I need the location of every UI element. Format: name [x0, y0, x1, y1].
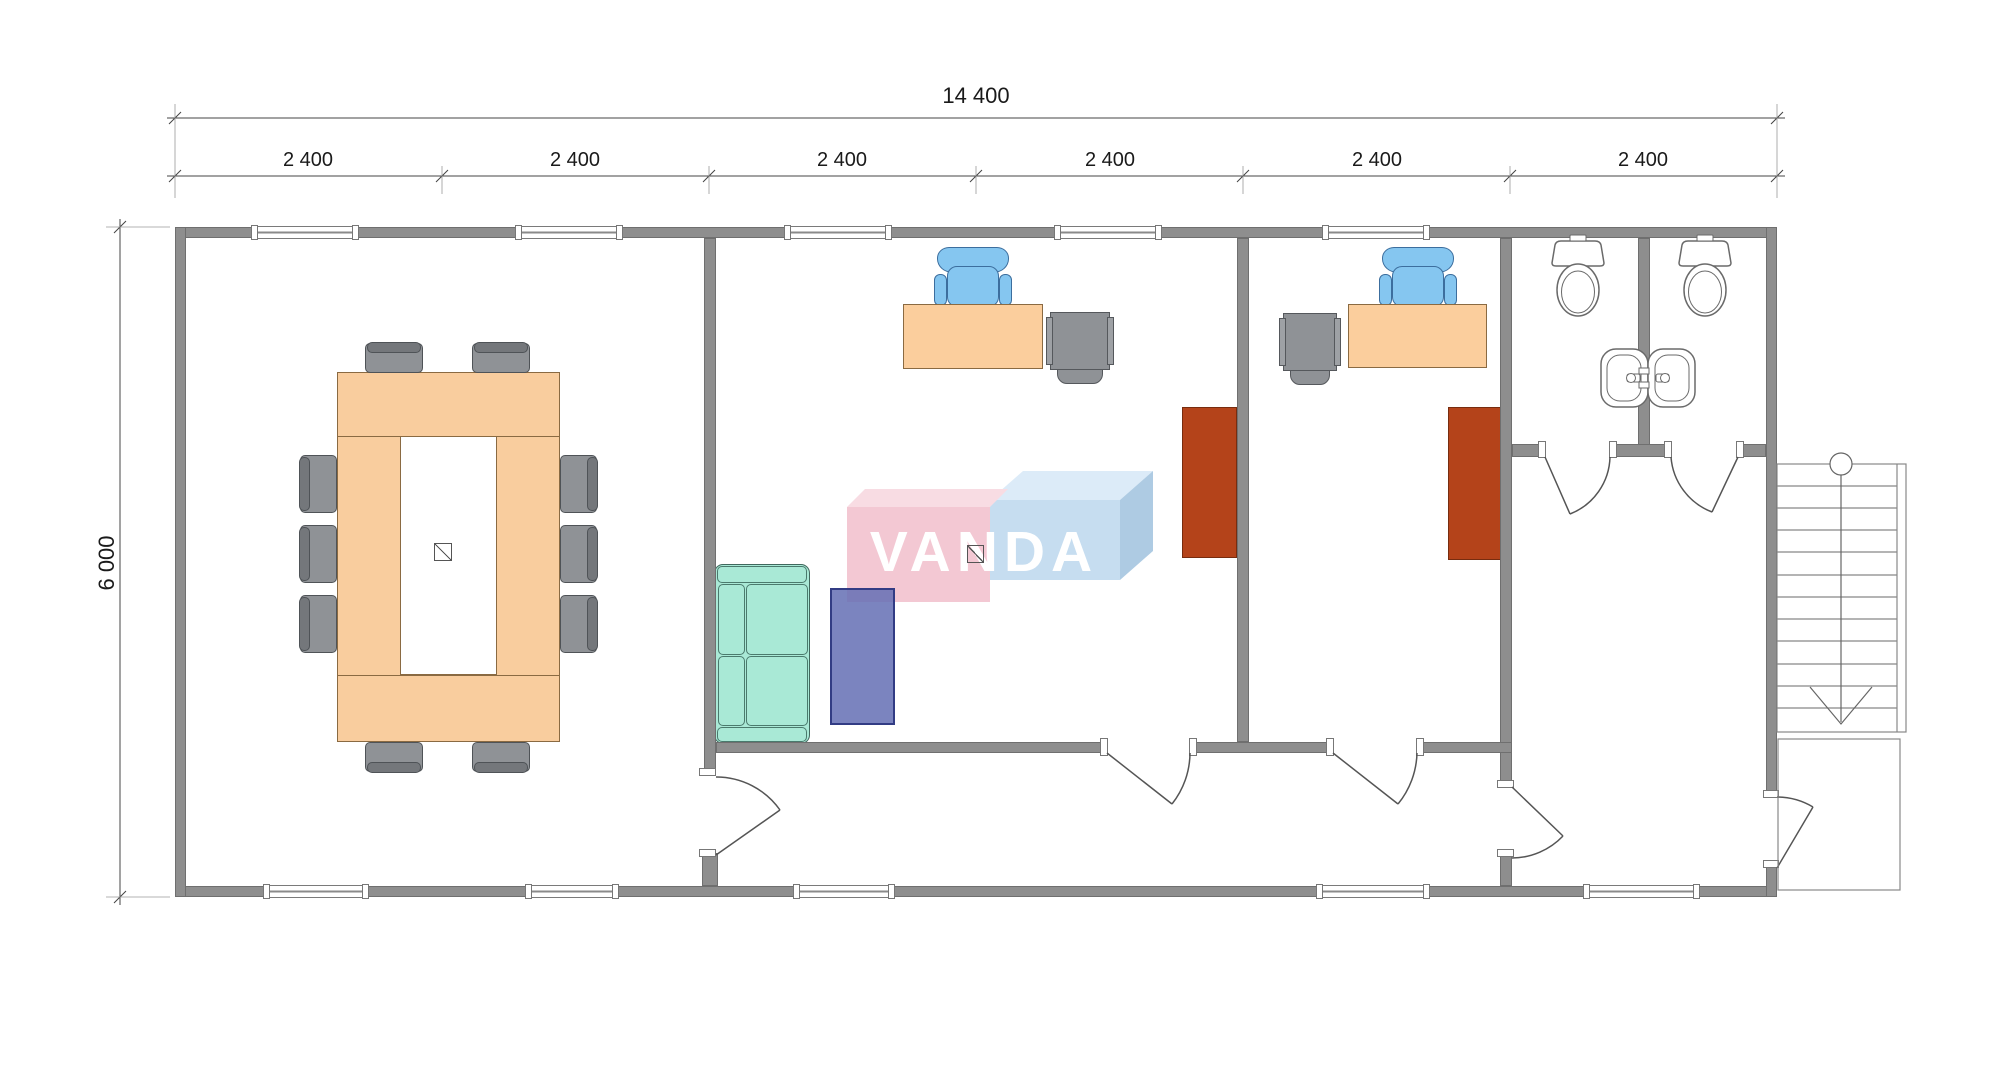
- dim-total-width: 14 400: [916, 83, 1036, 109]
- floor-plan: VANDA: [0, 0, 2000, 1076]
- wardrobe-panel-1: [1182, 407, 1237, 558]
- wall-conference-office1: [704, 238, 716, 772]
- desk-1: [903, 304, 1043, 369]
- entrance-door-window: [1318, 885, 1428, 898]
- conference-chair: [560, 595, 597, 653]
- door-jamb: [1416, 738, 1424, 756]
- wardrobe-panel-2: [1448, 407, 1503, 560]
- wall-stub: [702, 853, 718, 886]
- dim-height: 6 000: [94, 513, 120, 613]
- floor-symbol: [434, 543, 452, 561]
- window: [1324, 226, 1428, 239]
- door-jamb: [1736, 441, 1744, 458]
- conference-chair: [300, 525, 337, 583]
- floor-symbol: [967, 545, 984, 563]
- door-opening: [1334, 741, 1417, 755]
- desk-chair-armrest: [999, 274, 1012, 306]
- window: [1585, 885, 1698, 898]
- sink-icon: [1648, 349, 1695, 407]
- desk-2: [1348, 304, 1487, 368]
- wall-wc-divider: [1638, 238, 1650, 457]
- conference-chair: [365, 343, 423, 373]
- staircase: [1777, 453, 1906, 890]
- toilet-icon: [1552, 235, 1604, 316]
- door-jamb: [1326, 738, 1334, 756]
- desk-chair-armrest: [1379, 274, 1392, 306]
- conference-chair: [300, 595, 337, 653]
- dim-module: 2 400: [802, 149, 882, 172]
- window: [253, 226, 357, 239]
- wall-stub: [1500, 853, 1512, 886]
- cabinet-1: [1050, 312, 1110, 370]
- sofa-seat-cushion: [746, 584, 808, 655]
- stair-direction-arrow: [1810, 687, 1872, 724]
- conference-chair: [472, 742, 530, 772]
- door-jamb: [1497, 849, 1514, 857]
- sofa-armrest: [717, 566, 807, 583]
- wall-wc-front: [1610, 444, 1671, 457]
- door-jamb: [699, 849, 716, 857]
- dim-module: 2 400: [535, 149, 615, 172]
- wall-exterior-left: [175, 227, 186, 897]
- faucet-icon: [1627, 374, 1636, 383]
- wall-exterior-top: [175, 227, 1777, 238]
- door-opening: [1765, 798, 1779, 868]
- dim-module: 2 400: [1070, 149, 1150, 172]
- sofa-seat-cushion: [746, 656, 808, 726]
- window: [795, 885, 893, 898]
- desk-chair-armrest: [1444, 274, 1457, 306]
- door-jamb: [1664, 441, 1672, 458]
- window: [527, 885, 617, 898]
- door-jamb: [1538, 441, 1546, 458]
- landing: [1778, 739, 1900, 890]
- door-jamb: [699, 768, 716, 776]
- door-jamb: [1763, 790, 1779, 798]
- door-jamb: [1189, 738, 1197, 756]
- window: [517, 226, 621, 239]
- conference-chair: [365, 742, 423, 772]
- cabinet-2: [1283, 313, 1337, 371]
- dim-module: 2 400: [1337, 149, 1417, 172]
- stair-start-circle: [1830, 453, 1852, 475]
- window: [786, 226, 890, 239]
- desk-chair-armrest: [934, 274, 947, 306]
- door-jamb: [1497, 780, 1514, 788]
- sofa-back-cushion: [718, 656, 745, 726]
- dim-module: 2 400: [1603, 149, 1683, 172]
- window: [1056, 226, 1160, 239]
- door-jamb: [1763, 860, 1779, 868]
- desk-chair-seat: [947, 266, 999, 307]
- wall-office2-vestibule: [1500, 238, 1512, 787]
- floor-mat: [830, 588, 895, 725]
- faucet-icon: [1661, 374, 1670, 383]
- desk-chair-seat: [1392, 266, 1444, 307]
- sofa-back-cushion: [718, 584, 745, 655]
- door-jamb: [1100, 738, 1108, 756]
- sofa-armrest: [717, 727, 807, 742]
- wall-office1-office2: [1237, 238, 1249, 742]
- dim-module: 2 400: [268, 149, 348, 172]
- door-opening: [1108, 741, 1190, 755]
- vanda-logo-text: VANDA: [850, 519, 1118, 585]
- wall-exterior-bottom: [175, 886, 1777, 897]
- door-jamb: [1609, 441, 1617, 458]
- conference-chair: [300, 455, 337, 513]
- conference-chair: [560, 455, 597, 513]
- window: [265, 885, 367, 898]
- conference-chair: [560, 525, 597, 583]
- conference-chair: [472, 343, 530, 373]
